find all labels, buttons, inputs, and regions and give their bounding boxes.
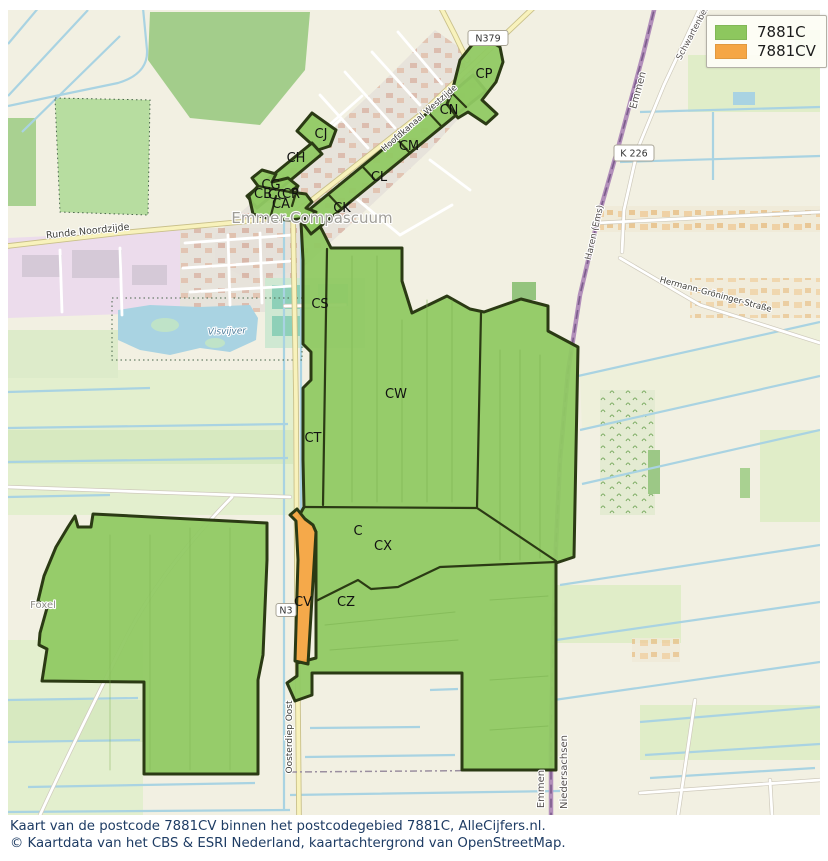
area-label-CH: CH	[287, 151, 306, 166]
legend-label: 7881CV	[757, 43, 816, 59]
legend-item-7881C: 7881C	[715, 24, 816, 40]
area-label-CL: CL	[371, 170, 388, 185]
legend-swatch-7881CV	[715, 44, 747, 59]
area-label-CZ: CZ	[337, 595, 355, 610]
map-label-niedersachsen: Niedersachsen	[559, 735, 570, 809]
map-label-visvijver: Visvijver	[208, 326, 248, 337]
legend-item-7881CV: 7881CV	[715, 43, 816, 59]
map-content: N379K 226N3 CPCNCMCLCKCJCHCGCBCCCRCACSCW…	[8, 0, 820, 815]
caption-line-1: Kaart van de postcode 7881CV binnen het …	[10, 818, 566, 835]
area-label-CP: CP	[476, 67, 493, 82]
page: N379K 226N3 CPCNCMCLCKCJCHCGCBCCCRCACSCW…	[0, 0, 828, 861]
caption: Kaart van de postcode 7881CV binnen het …	[10, 818, 566, 852]
map-label-emmer-compascuum: Emmer-Compascuum	[231, 209, 392, 227]
map-label-emmen: Emmen	[536, 770, 547, 808]
legend-label: 7881C	[757, 24, 806, 40]
road-badge-text: K 226	[620, 149, 647, 160]
map-label-oosterdiep-oost: Oosterdiep Oost	[285, 700, 295, 773]
area-label-CX: CX	[374, 539, 392, 554]
road-badge-N379: N379	[468, 31, 508, 46]
road-badge-K226: K 226	[614, 145, 654, 161]
area-label-CJ: CJ	[315, 127, 328, 142]
area-label-C: C	[353, 524, 362, 539]
area-label-CV: CV	[294, 595, 312, 610]
road-badge-N3: N3	[276, 604, 296, 617]
area-label-CT: CT	[304, 431, 321, 446]
map-label-foxel: Foxel	[30, 600, 56, 611]
area-label-CS: CS	[311, 297, 328, 312]
road-badge-text: N379	[475, 34, 500, 45]
road-badge-text: N3	[279, 606, 292, 617]
caption-line-2: © Kaartdata van het CBS & ESRI Nederland…	[10, 835, 566, 852]
area-label-CW: CW	[385, 387, 407, 402]
legend-swatch-7881C	[715, 25, 747, 40]
map-canvas: N379K 226N3 CPCNCMCLCKCJCHCGCBCCCRCACSCW…	[0, 0, 828, 815]
area-label-CM: CM	[399, 139, 419, 154]
legend: 7881C7881CV	[706, 15, 827, 68]
